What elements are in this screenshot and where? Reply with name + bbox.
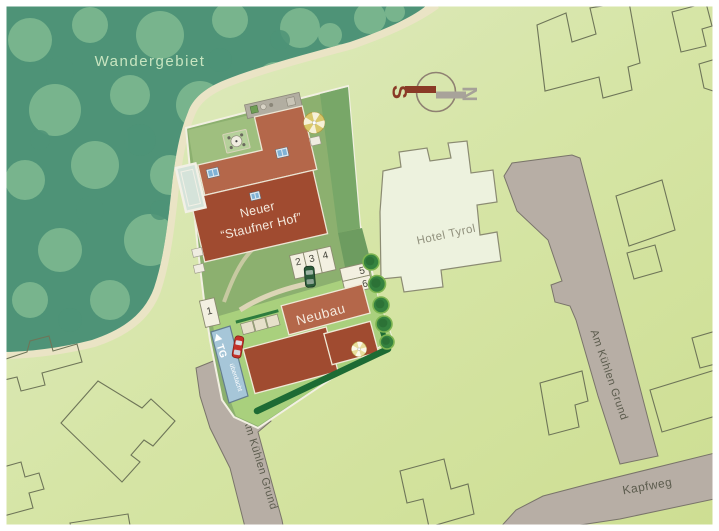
utility-object	[286, 97, 296, 107]
tree-icon	[363, 254, 379, 270]
tree-icon	[369, 276, 386, 293]
green-car-icon	[304, 266, 316, 288]
tree-icon	[373, 297, 389, 313]
site-plan-page: Wandergebiet Hotel Tyrol Am Kühlen Grund…	[0, 0, 719, 531]
wandergebiet-label: Wandergebiet	[95, 53, 206, 70]
compass-north-label: N	[458, 86, 481, 101]
utility-object	[250, 105, 258, 113]
tree-icon	[380, 335, 394, 349]
tree-icon	[376, 316, 392, 332]
compass-south-label: S	[388, 85, 411, 99]
site-plan-map: Wandergebiet Hotel Tyrol Am Kühlen Grund…	[0, 0, 719, 531]
